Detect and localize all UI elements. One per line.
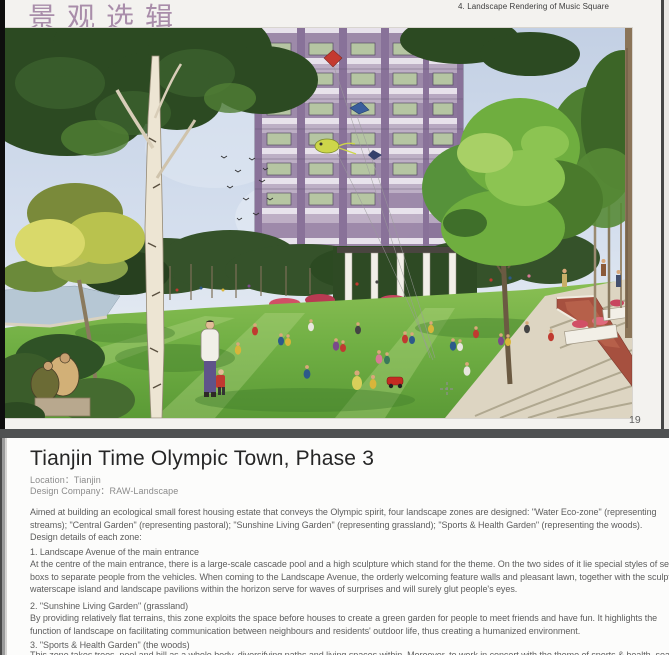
body-line-8: 2. "Sunshine Living Garden" (grassland) [30,601,188,611]
cursor-crosshair [440,382,454,396]
company-line: Design Company：RAW-Landscape [30,484,178,497]
page-number: 19 [629,414,641,426]
book-scan: 景观选辑 4. Landscape Rendering of Music Squ… [0,0,669,655]
body-line-7: waterscape island and landscape pavilion… [30,584,517,594]
article-page: Tianjin Time Olympic Town, Phase 3 Locat… [0,438,669,655]
park-rendering-illustration [5,28,632,418]
page-edge-outer [664,0,669,429]
article-title: Tianjin Time Olympic Town, Phase 3 [30,447,374,471]
body-line-11: 3. "Sports & Health Garden" (the woods) [30,640,190,650]
body-line-5: At the centre of the main entrance, ther… [30,559,669,569]
body-line-2: streams); "Central Garden" (representing… [30,520,642,530]
scan-edge-left [0,0,5,429]
park-rendering-svg [5,28,632,418]
body-line-4: 1. Landscape Avenue of the main entrance [30,547,199,557]
page-divider-bar [0,429,669,438]
body-line-10: function of landscape on facilitating co… [30,626,580,636]
body-line-9: By providing relatively flat terrains, t… [30,613,657,623]
scan-edge-left-bottom [0,438,7,655]
body-line-12: This zone takes trees, pool and hill as … [30,650,669,655]
body-line-6: boxs to separate people from the vehicle… [30,572,669,582]
body-line-3: Design details of each zone: [30,532,142,542]
body-line-1: Aimed at building an ecological small fo… [30,507,657,517]
figure-caption: 4. Landscape Rendering of Music Square [458,2,609,11]
photo-page: 景观选辑 4. Landscape Rendering of Music Squ… [0,0,669,429]
